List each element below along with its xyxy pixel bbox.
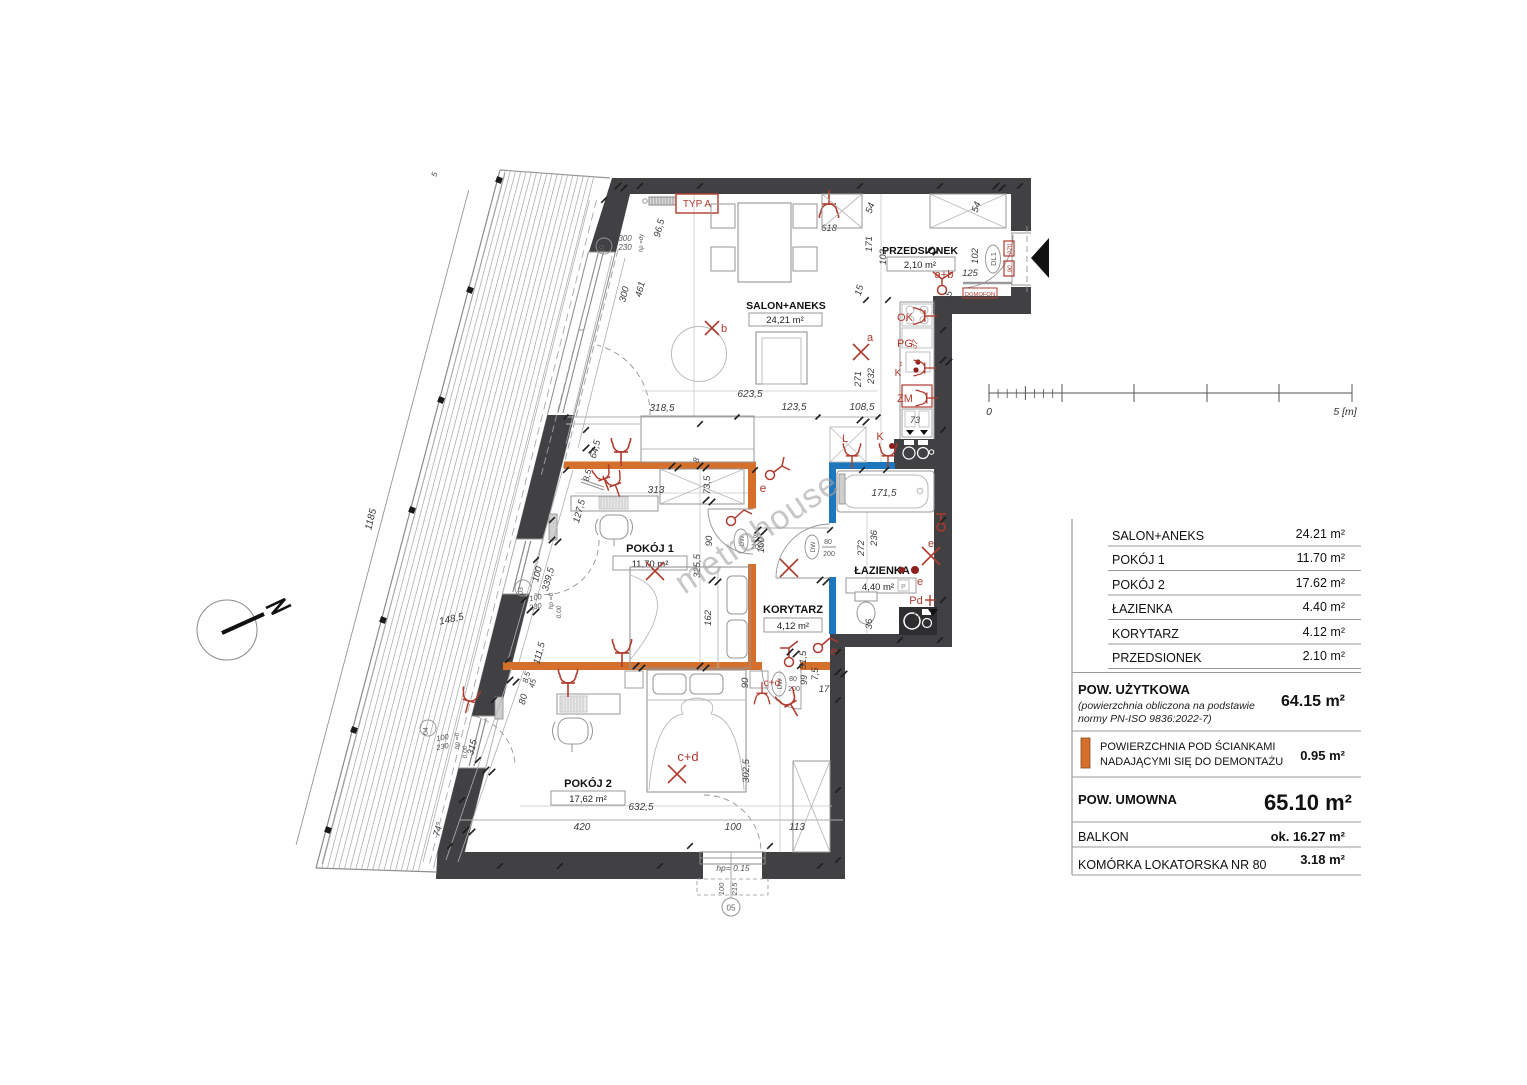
svg-text:5 [m]: 5 [m] bbox=[1333, 406, 1357, 418]
svg-text:a: a bbox=[867, 332, 874, 344]
svg-text:236: 236 bbox=[869, 529, 880, 547]
svg-text:123,5: 123,5 bbox=[781, 402, 806, 413]
svg-text:c+d: c+d bbox=[764, 678, 780, 689]
svg-text:ZM: ZM bbox=[897, 393, 913, 405]
svg-text:11,70 m²: 11,70 m² bbox=[632, 559, 669, 570]
svg-text:270: 270 bbox=[1007, 243, 1014, 255]
svg-text:313: 313 bbox=[648, 485, 665, 496]
svg-text:300: 300 bbox=[618, 234, 632, 243]
svg-text:e: e bbox=[831, 644, 838, 658]
svg-text:POW. UMOWNA: POW. UMOWNA bbox=[1078, 792, 1178, 807]
svg-text:ok. 16.27 m²: ok. 16.27 m² bbox=[1271, 829, 1346, 844]
svg-text:10: 10 bbox=[599, 245, 606, 253]
svg-text:36: 36 bbox=[864, 618, 875, 629]
svg-text:4.40 m²: 4.40 m² bbox=[1303, 600, 1345, 614]
svg-text:65.10 m²: 65.10 m² bbox=[1264, 790, 1352, 815]
svg-text:420: 420 bbox=[574, 822, 591, 833]
svg-text:102: 102 bbox=[878, 248, 889, 265]
svg-text:SALON+ANEKS: SALON+ANEKS bbox=[1112, 529, 1204, 543]
svg-text:215: 215 bbox=[730, 882, 739, 896]
svg-text:73,5: 73,5 bbox=[702, 475, 713, 494]
svg-text:0,00: 0,00 bbox=[462, 745, 469, 758]
svg-text:108,5: 108,5 bbox=[849, 402, 874, 413]
svg-text:BALKON: BALKON bbox=[1078, 830, 1129, 844]
svg-text:3.18 m²: 3.18 m² bbox=[1300, 852, 1345, 867]
svg-text:102: 102 bbox=[970, 247, 981, 264]
svg-text:318,5: 318,5 bbox=[649, 403, 674, 414]
svg-text:73: 73 bbox=[910, 415, 920, 425]
svg-text:P: P bbox=[901, 584, 906, 591]
svg-text:SALON+ANEKS: SALON+ANEKS bbox=[746, 300, 826, 312]
svg-text:L: L bbox=[842, 433, 848, 445]
svg-text:2.10 m²: 2.10 m² bbox=[1303, 649, 1345, 663]
svg-text:230: 230 bbox=[617, 243, 632, 252]
svg-text:Pd: Pd bbox=[909, 595, 922, 607]
svg-text:4.12 m²: 4.12 m² bbox=[1303, 625, 1345, 639]
svg-text:24,21 m²: 24,21 m² bbox=[766, 315, 804, 326]
svg-text:125: 125 bbox=[962, 268, 979, 279]
svg-text:11.70 m²: 11.70 m² bbox=[1297, 551, 1345, 565]
svg-text:a+b: a+b bbox=[935, 269, 954, 281]
svg-text:PRZEDSIONEK: PRZEDSIONEK bbox=[882, 245, 958, 257]
svg-text:113: 113 bbox=[789, 822, 805, 833]
svg-text:hp =0: hp =0 bbox=[548, 592, 555, 609]
svg-text:17.62 m²: 17.62 m² bbox=[1296, 576, 1345, 590]
svg-text:POKÓJ 1: POKÓJ 1 bbox=[1112, 552, 1165, 567]
svg-text:7,5: 7,5 bbox=[810, 667, 820, 681]
svg-text:0: 0 bbox=[986, 406, 992, 418]
svg-text:0,00: 0,00 bbox=[556, 605, 563, 618]
svg-text:POW. UŻYTKOWA: POW. UŻYTKOWA bbox=[1078, 682, 1191, 697]
svg-text:normy PN-ISO 9836:2022-7): normy PN-ISO 9836:2022-7) bbox=[1078, 713, 1212, 725]
svg-text:hp= 0.15: hp= 0.15 bbox=[716, 863, 750, 873]
svg-text:e: e bbox=[928, 538, 934, 550]
svg-text:272: 272 bbox=[856, 539, 867, 557]
svg-text:04: 04 bbox=[423, 727, 430, 735]
svg-text:e: e bbox=[760, 481, 767, 495]
svg-text:DOMOFON: DOMOFON bbox=[965, 292, 995, 298]
svg-text:hp =0: hp =0 bbox=[454, 732, 461, 749]
svg-text:100: 100 bbox=[725, 822, 742, 833]
svg-text:60: 60 bbox=[912, 612, 921, 621]
svg-text:03: 03 bbox=[518, 587, 525, 595]
svg-text:POKÓJ 1: POKÓJ 1 bbox=[626, 542, 674, 555]
svg-text:hp =dy: hp =dy bbox=[639, 233, 645, 252]
svg-text:KOMÓRKA LOKATORSKA NR 80: KOMÓRKA LOKATORSKA NR 80 bbox=[1078, 857, 1267, 872]
svg-text:302,5: 302,5 bbox=[741, 758, 752, 782]
svg-text:24.21 m²: 24.21 m² bbox=[1296, 527, 1345, 541]
svg-text:ż: ż bbox=[900, 362, 903, 368]
svg-text:271: 271 bbox=[853, 371, 864, 388]
svg-text:NADAJĄCYMI SIĘ DO DEMONTAŻU: NADAJĄCYMI SIĘ DO DEMONTAŻU bbox=[1100, 755, 1283, 768]
svg-text:DL1: DL1 bbox=[989, 252, 998, 266]
svg-text:4,12 m²: 4,12 m² bbox=[777, 621, 809, 632]
svg-text:171,5: 171,5 bbox=[871, 488, 896, 499]
svg-text:623,5: 623,5 bbox=[737, 389, 762, 400]
svg-text:100: 100 bbox=[717, 882, 726, 895]
svg-text:KORYTARZ: KORYTARZ bbox=[763, 604, 823, 616]
svg-text:(powierzchnia obliczona na pod: (powierzchnia obliczona na podstawie bbox=[1078, 700, 1255, 712]
svg-text:DW: DW bbox=[810, 541, 817, 553]
svg-text:TYP A: TYP A bbox=[683, 199, 711, 210]
svg-text:200: 200 bbox=[823, 551, 835, 558]
svg-text:c+d: c+d bbox=[677, 749, 698, 764]
svg-text:232: 232 bbox=[866, 367, 877, 385]
svg-text:POKÓJ 2: POKÓJ 2 bbox=[564, 777, 612, 790]
svg-text:POWIERZCHNIA POD ŚCIANKAMI: POWIERZCHNIA POD ŚCIANKAMI bbox=[1100, 740, 1275, 753]
svg-text:2,10 m²: 2,10 m² bbox=[904, 260, 936, 271]
svg-text:64.15 m²: 64.15 m² bbox=[1281, 693, 1345, 710]
svg-text:17,62 m²: 17,62 m² bbox=[569, 794, 607, 805]
svg-text:POKÓJ 2: POKÓJ 2 bbox=[1112, 577, 1165, 592]
svg-text:b: b bbox=[721, 323, 727, 335]
svg-text:80: 80 bbox=[824, 539, 832, 546]
svg-text:99: 99 bbox=[799, 675, 809, 685]
svg-text:17: 17 bbox=[819, 684, 830, 695]
svg-text:632,5: 632,5 bbox=[628, 802, 653, 813]
svg-text:PRZEDSIONEK: PRZEDSIONEK bbox=[1112, 651, 1202, 665]
svg-text:0.95 m²: 0.95 m² bbox=[1300, 748, 1345, 763]
svg-text:90: 90 bbox=[740, 677, 751, 688]
svg-text:OK: OK bbox=[897, 312, 914, 324]
svg-text:KORYTARZ: KORYTARZ bbox=[1112, 627, 1179, 641]
svg-text:e: e bbox=[917, 576, 923, 588]
svg-text:90: 90 bbox=[1007, 265, 1014, 273]
svg-text:4,40 m²: 4,40 m² bbox=[862, 582, 894, 593]
svg-text:05: 05 bbox=[727, 904, 736, 913]
svg-text:ŁAZIENKA: ŁAZIENKA bbox=[1112, 602, 1173, 616]
svg-text:162: 162 bbox=[703, 609, 714, 626]
svg-text:K: K bbox=[876, 431, 884, 443]
svg-text:171: 171 bbox=[864, 236, 875, 252]
svg-text:K: K bbox=[895, 368, 902, 379]
svg-text:80: 80 bbox=[789, 676, 797, 683]
